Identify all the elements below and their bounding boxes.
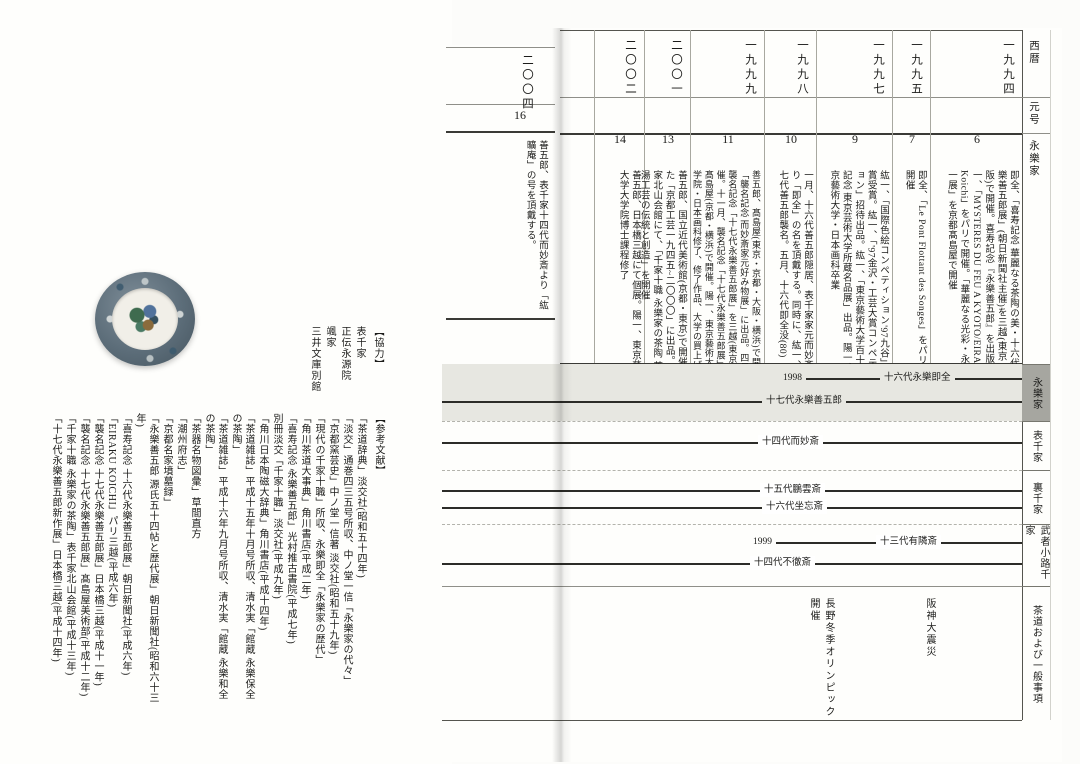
reference-entry: 「京都窯芸史」中ノ堂一信著 淡交社(昭和五十九年) [326, 413, 339, 707]
chronology-column-1994: 一九九四 6 即全、「喜寿記念 華麗なる茶陶の美・十六代永樂善五郎展」(朝日新聞… [930, 30, 1023, 363]
reference-entry: 「EIRAKU KOICHI」パリ三越(平成六年) [105, 413, 118, 707]
cooperation-entry: 颯家 [322, 326, 336, 422]
cooperation-entry: 表千家 [352, 326, 366, 422]
lifeline-name: 十五代鵬雲斎 [760, 483, 825, 497]
tab-eirakuke: 永樂家 [1022, 364, 1050, 422]
cooperation-section: 【協力】 表千家 正伝永源院 颯家 三井文庫別館 [298, 326, 384, 422]
year-label: 一九九九 [742, 39, 758, 97]
lifeline-name: 十七代永樂善五郎 [762, 394, 846, 408]
lifeline-sokuzen: 1998 十六代永樂即全 [806, 378, 1022, 380]
event-text: 即全、「喜寿記念 華麗なる茶陶の美・十六代永樂善五郎展」(朝日新聞社主催)を三越… [945, 170, 1019, 388]
tab-label: 裏千家 [1029, 482, 1044, 515]
reference-entry: 「襲名記念 十七代永樂善五郎展」髙島屋美術部(平成十二年) [77, 413, 90, 707]
reference-entry: 別冊淡交「千家十職」淡交社(平成九年) [270, 413, 283, 707]
band-separator-dashed [442, 421, 1022, 422]
reference-entry: 「茶器名物図彙」草間直方 [188, 413, 201, 707]
timeline-event-hanshin: 阪神大震災 [922, 598, 937, 718]
tab-label: 永樂家 [1029, 377, 1044, 410]
header-seireki: 西暦 [1026, 40, 1041, 65]
lifeline-hounsai: 十五代鵬雲斎 [442, 490, 1022, 492]
reference-entry: 「現代の千家十職」所収、永樂即全「永樂家の歴代」 [312, 413, 325, 707]
reference-entry: 「喜寿記念 永樂善五郎」光村推古書院(平成七年) [284, 413, 297, 707]
references-section: 【参考文献】 「茶道辞典」淡交社(昭和五十四年) 「淡交」通巻四三五号所収、中ノ… [37, 413, 385, 707]
lifeline-yurinsai: 1999 十三代有隣斎 [776, 542, 1022, 544]
lifeline-end-year: 1998 [768, 371, 802, 385]
reference-entry: 「京都名家墳墓録」 [160, 413, 173, 707]
era-number: 7 [893, 132, 931, 147]
chronology-column-1999: 一九九九 11 善五郎、髙島屋(東京・京都・大阪・横浜)で開催の「襲名記念 而妙… [690, 30, 765, 363]
year-label: 二〇〇二 [622, 39, 638, 97]
tab-label: 武者小路千家 [1021, 525, 1051, 587]
timeline-event-nagano: 長野冬季オリンピック開催 [806, 598, 836, 724]
strip-rule-top [446, 47, 558, 48]
sidebar-separator [1022, 133, 1050, 134]
ceramic-bowl-photo [95, 272, 195, 366]
cooperation-entry: 正伝永源院 [337, 326, 351, 422]
tab-mushakojisenke: 武者小路千家 [1022, 524, 1050, 587]
event-text: 紘一、「国際色絵コンペティション'97九谷」で金賞受賞。紘一、「'97金沢・工芸… [827, 170, 889, 388]
header-eirakuke: 永樂家 [1026, 140, 1041, 178]
band-separator-dashed [442, 524, 1022, 525]
band-separator [442, 586, 1022, 587]
reference-entry: 「茶道雑誌」平成十六年九月号所収、清水実「館蔵 永樂和全の茶陶」 [202, 413, 228, 707]
event-text: 善五郎、髙島屋(東京・京都・大阪・横浜)で開催の「襲名記念 而妙斎家元好み物展」… [690, 170, 761, 388]
chronology-column-1998: 一九九八 10 一月、十六代善五郎隠居、表千家家元而妙斎より「即全」の名を頂戴す… [764, 30, 817, 363]
strip-rule-era [446, 131, 558, 133]
year-label: 一九九七 [870, 39, 886, 97]
tab-label: 茶道および一般事項 [1029, 605, 1044, 704]
reference-entry: 「潮州府志」 [174, 413, 187, 707]
cooperation-entry: 三井文庫別館 [307, 326, 321, 422]
chronology-column-1997: 一九九七 9 紘一、「国際色絵コンペティション'97九谷」で金賞受賞。紘一、「'… [816, 30, 893, 363]
tab-omotesenke: 表千家 [1022, 421, 1050, 471]
event-text: 善五郎、日本橋三越にて個展。陽一、東京藝術大学大学院博士課程修了 [616, 170, 641, 388]
era-number: 10 [765, 132, 817, 147]
era-number: 6 [931, 132, 1023, 147]
next-page-year: 二〇〇四 [519, 54, 535, 112]
book-spread-scan: 【協力】 表千家 正伝永源院 颯家 三井文庫別館 【参考文献】 「茶道辞典」淡交… [0, 0, 1080, 764]
tab-general-events: 茶道および一般事項 [1022, 586, 1050, 721]
tab-urasenke: 裏千家 [1022, 470, 1050, 525]
reference-entry: 「淡交」通巻四三五号所収、中ノ堂一信「永樂家の代々」 [340, 413, 353, 707]
lifeline-name: 十三代有隣斎 [876, 535, 941, 549]
year-label: 二〇〇一 [668, 39, 684, 97]
reference-entry: 「十七代永樂善五郎新作展」日本橋三越(平成十四年) [49, 413, 62, 707]
lifeline-name: 十六代永樂即全 [880, 371, 955, 385]
lifeline-jimyosai: 十四代而妙斎 [442, 442, 1022, 444]
reference-entry: 「角川日本陶磁大辞典」角川書店(平成十四年) [256, 413, 269, 707]
reference-entry: 「喜寿記念 十六代永樂善五郎展」朝日新聞社(平成六年) [119, 413, 132, 707]
page-gutter-shadow [552, 28, 572, 762]
chronology-column-2002: 二〇〇二 14 善五郎、日本橋三越にて個展。陽一、東京藝術大学大学院博士課程修了 [594, 30, 645, 363]
lifeline-name: 十四代不徹斎 [750, 556, 815, 570]
references-heading: 【参考文献】 [372, 413, 385, 707]
strip-rule-year [446, 104, 558, 105]
chronology-column-2001: 二〇〇一 13 善五郎、国立近代美術館(京都・東京)で開催された「京都工芸一九四… [644, 30, 691, 363]
cooperation-heading: 【協力】 [370, 326, 384, 422]
reference-entry: 「角川茶道大事典」角川書店(平成二年) [298, 413, 311, 707]
era-number: 11 [691, 132, 765, 147]
lifeline-futetsusai: 十四代不徹斎 [442, 563, 1022, 565]
strip-rule-bottom [446, 318, 558, 320]
chronology-column-1995: 一九九五 7 即全、「Le Pont Flottant des Songes」を… [892, 30, 931, 363]
band-separator-dashed [442, 470, 1022, 471]
lifeline-zengoro17: 十七代永樂善五郎 [442, 401, 1022, 403]
lifeline-name: 十四代而妙斎 [758, 435, 823, 449]
era-number: 13 [645, 132, 691, 147]
lifeline-end-year: 1999 [738, 535, 772, 549]
reference-entry: 「茶道辞典」淡交社(昭和五十四年) [354, 413, 367, 707]
lifeline-zabosai: 十六代坐忘斎 [442, 507, 1022, 509]
era-number: 9 [817, 132, 893, 147]
reference-entry: 「永樂善五郎 源氏五十四帖と歴代展」朝日新聞社(昭和六十三年) [133, 413, 159, 707]
reference-entry: 「茶道雑誌」平成十五年十月号所収、清水実「館蔵 永樂保全の茶陶」 [229, 413, 255, 707]
event-text: 一月、十六代善五郎隠居、表千家家元而妙斎より「即全」の名を頂戴する。同時に、紘一… [776, 170, 813, 388]
lifeline-name: 十六代坐忘斎 [762, 500, 827, 514]
sidebar-rule-right [1050, 30, 1051, 720]
timeline-rule-bottom [442, 720, 1022, 721]
era-number: 14 [595, 132, 645, 147]
bowl-floral-motif [125, 300, 165, 338]
bowl-interior [112, 288, 178, 350]
year-label: 一九九八 [794, 39, 810, 97]
header-gengo: 元号 [1026, 101, 1041, 126]
reference-entry: 「襲名記念 十七代永樂善五郎展」日本橋三越(平成十一年) [91, 413, 104, 707]
year-label: 一九九五 [908, 39, 924, 97]
tab-label: 表千家 [1029, 430, 1044, 463]
next-page-era: 16 [490, 108, 550, 123]
sidebar-separator [1022, 97, 1050, 98]
reference-entry: 「千家十職 永樂家の茶陶」表千家北山会館(平成十三年) [63, 413, 76, 707]
event-text: 即全、「Le Pont Flottant des Songes」をパリにて開催 [902, 170, 927, 388]
year-label: 一九九四 [1000, 39, 1016, 97]
next-page-event-text: 善五郎、表千家十四代而妙斎より「紘曠庵」の号を頂戴する。 [486, 140, 548, 312]
